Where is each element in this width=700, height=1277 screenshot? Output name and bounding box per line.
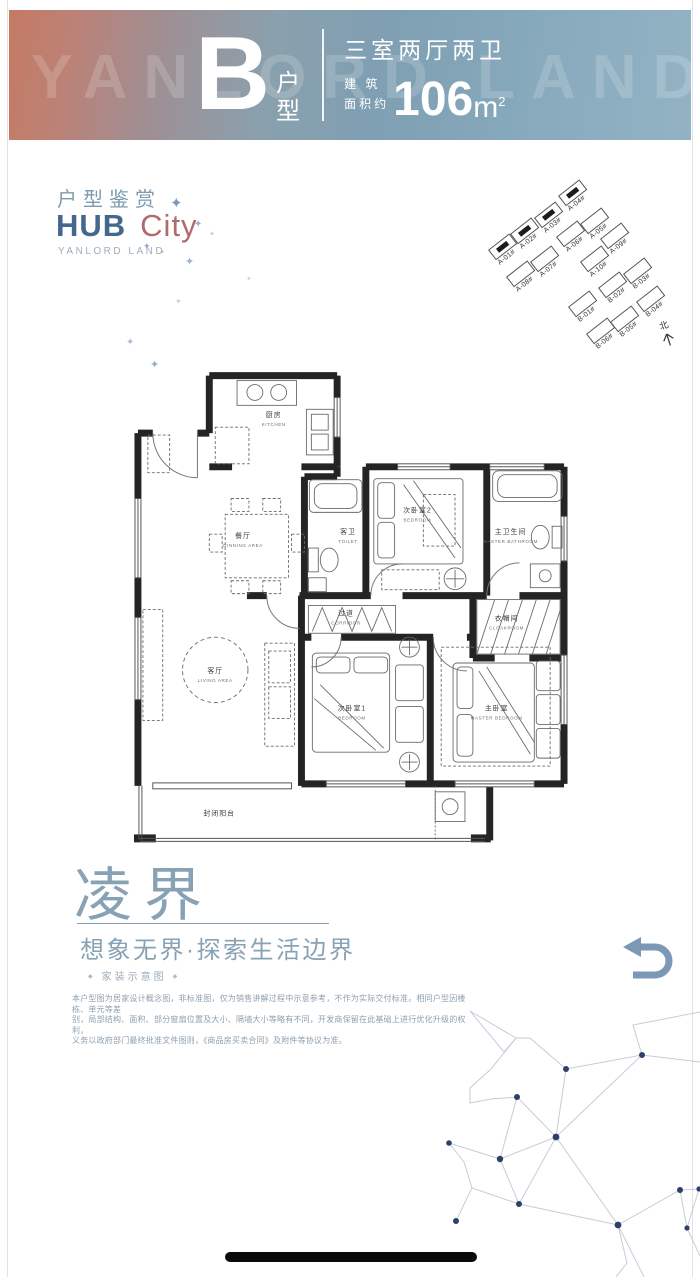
area-prefix: 建 筑 面积约 bbox=[344, 75, 389, 113]
banner: YANLORD LAND B 户型 三室两厅两卫 建 筑 面积约 106 m2 bbox=[9, 10, 691, 140]
svg-text:CORRIDOR: CORRIDOR bbox=[331, 620, 361, 625]
svg-text:BEDROOM: BEDROOM bbox=[404, 517, 432, 522]
sparkle-icon: ✦ bbox=[126, 338, 134, 348]
svg-text:客卫: 客卫 bbox=[340, 527, 356, 536]
svg-text:餐厅: 餐厅 bbox=[235, 531, 251, 540]
back-button[interactable] bbox=[616, 934, 680, 986]
svg-text:主卫生间: 主卫生间 bbox=[495, 527, 527, 536]
banner-divider bbox=[322, 29, 324, 121]
diamond-icon: ◆ bbox=[173, 974, 181, 980]
svg-text:次卧室2: 次卧室2 bbox=[403, 505, 432, 514]
diamond-icon: ◆ bbox=[88, 974, 96, 980]
area-value: 106 bbox=[393, 80, 473, 121]
brand-secondary: City bbox=[140, 208, 197, 243]
floorplan-drawing: 厨房KITCHEN餐厅DINNING AREA客卫TOILET次卧室2BEDRO… bbox=[133, 365, 569, 851]
floorplan-balcony-glazing bbox=[139, 786, 485, 841]
disclaimer-text: 本户型图为居家设计概念图，非标准图，仅为销售讲解过程中示意参考，不作为实际交付标… bbox=[72, 994, 468, 1047]
svg-text:主卧室: 主卧室 bbox=[485, 704, 509, 713]
north-arrow-icon: 北 bbox=[655, 317, 679, 354]
svg-text:封闭阳台: 封闭阳台 bbox=[203, 809, 235, 818]
banner-right: 三室两厅两卫 建 筑 面积约 106 m2 bbox=[344, 29, 506, 120]
site-plan: 北 A-01#A-02#A-03#A-04#A-05#A-06#A-07#A-0… bbox=[468, 182, 698, 360]
sparkle-icon: ✦ bbox=[143, 242, 151, 251]
svg-text:BEDROOM: BEDROOM bbox=[338, 715, 366, 720]
floorplan-poster-page: YANLORD LAND B 户型 三室两厅两卫 建 筑 面积约 106 m2 … bbox=[0, 0, 700, 1277]
floorplan-walls bbox=[138, 376, 564, 841]
banner-content: B 户型 三室两厅两卫 建 筑 面积约 106 m2 bbox=[195, 10, 506, 140]
sparkle-icon: ✦ bbox=[246, 276, 252, 283]
svg-text:DINNING AREA: DINNING AREA bbox=[223, 543, 263, 548]
unicorn-constellation-art bbox=[420, 1000, 700, 1277]
sparkle-icon: ✦ bbox=[170, 196, 183, 211]
unit-type-suffix: 户型 bbox=[276, 70, 304, 125]
title-underline bbox=[77, 923, 329, 924]
note-row: ◆家装示意图◆ bbox=[82, 968, 186, 983]
svg-text:CLOAKROOM: CLOAKROOM bbox=[489, 625, 524, 630]
svg-text:TOILET: TOILET bbox=[338, 539, 357, 544]
area-row: 建 筑 面积约 106 m2 bbox=[344, 75, 506, 120]
svg-text:客厅: 客厅 bbox=[207, 666, 223, 675]
layout-description: 三室两厅两卫 bbox=[344, 31, 506, 65]
svg-text:MASTER BEDROOM: MASTER BEDROOM bbox=[471, 715, 523, 720]
svg-text:过道: 过道 bbox=[338, 608, 354, 617]
brand-primary: HUB bbox=[56, 208, 126, 243]
svg-text:MASTER BATHROOM: MASTER BATHROOM bbox=[483, 539, 538, 544]
sparkle-icon: ✦ bbox=[160, 250, 165, 256]
svg-text:衣帽间: 衣帽间 bbox=[495, 613, 519, 622]
screen-left-edge bbox=[7, 0, 8, 1277]
svg-text:次卧室1: 次卧室1 bbox=[338, 704, 367, 713]
sparkle-icon: ✦ bbox=[209, 231, 215, 238]
sparkle-icon: ✦ bbox=[185, 257, 194, 268]
sparkle-icon: ✦ bbox=[175, 298, 182, 306]
svg-text:厨房: 厨房 bbox=[266, 410, 282, 419]
tagline: 想象无界·探索生活边界 bbox=[80, 930, 356, 965]
area-unit: m2 bbox=[473, 94, 505, 121]
brand-line: HUBCity bbox=[56, 208, 198, 244]
sparkle-icon: ✦ bbox=[194, 220, 202, 230]
note-label: 家装示意图 bbox=[102, 972, 167, 983]
svg-text:LIVING AREA: LIVING AREA bbox=[198, 678, 233, 683]
project-title: 凌界 bbox=[74, 848, 214, 932]
unit-type-letter: B bbox=[195, 28, 270, 122]
home-indicator[interactable] bbox=[225, 1252, 477, 1262]
svg-text:KITCHEN: KITCHEN bbox=[262, 422, 286, 427]
